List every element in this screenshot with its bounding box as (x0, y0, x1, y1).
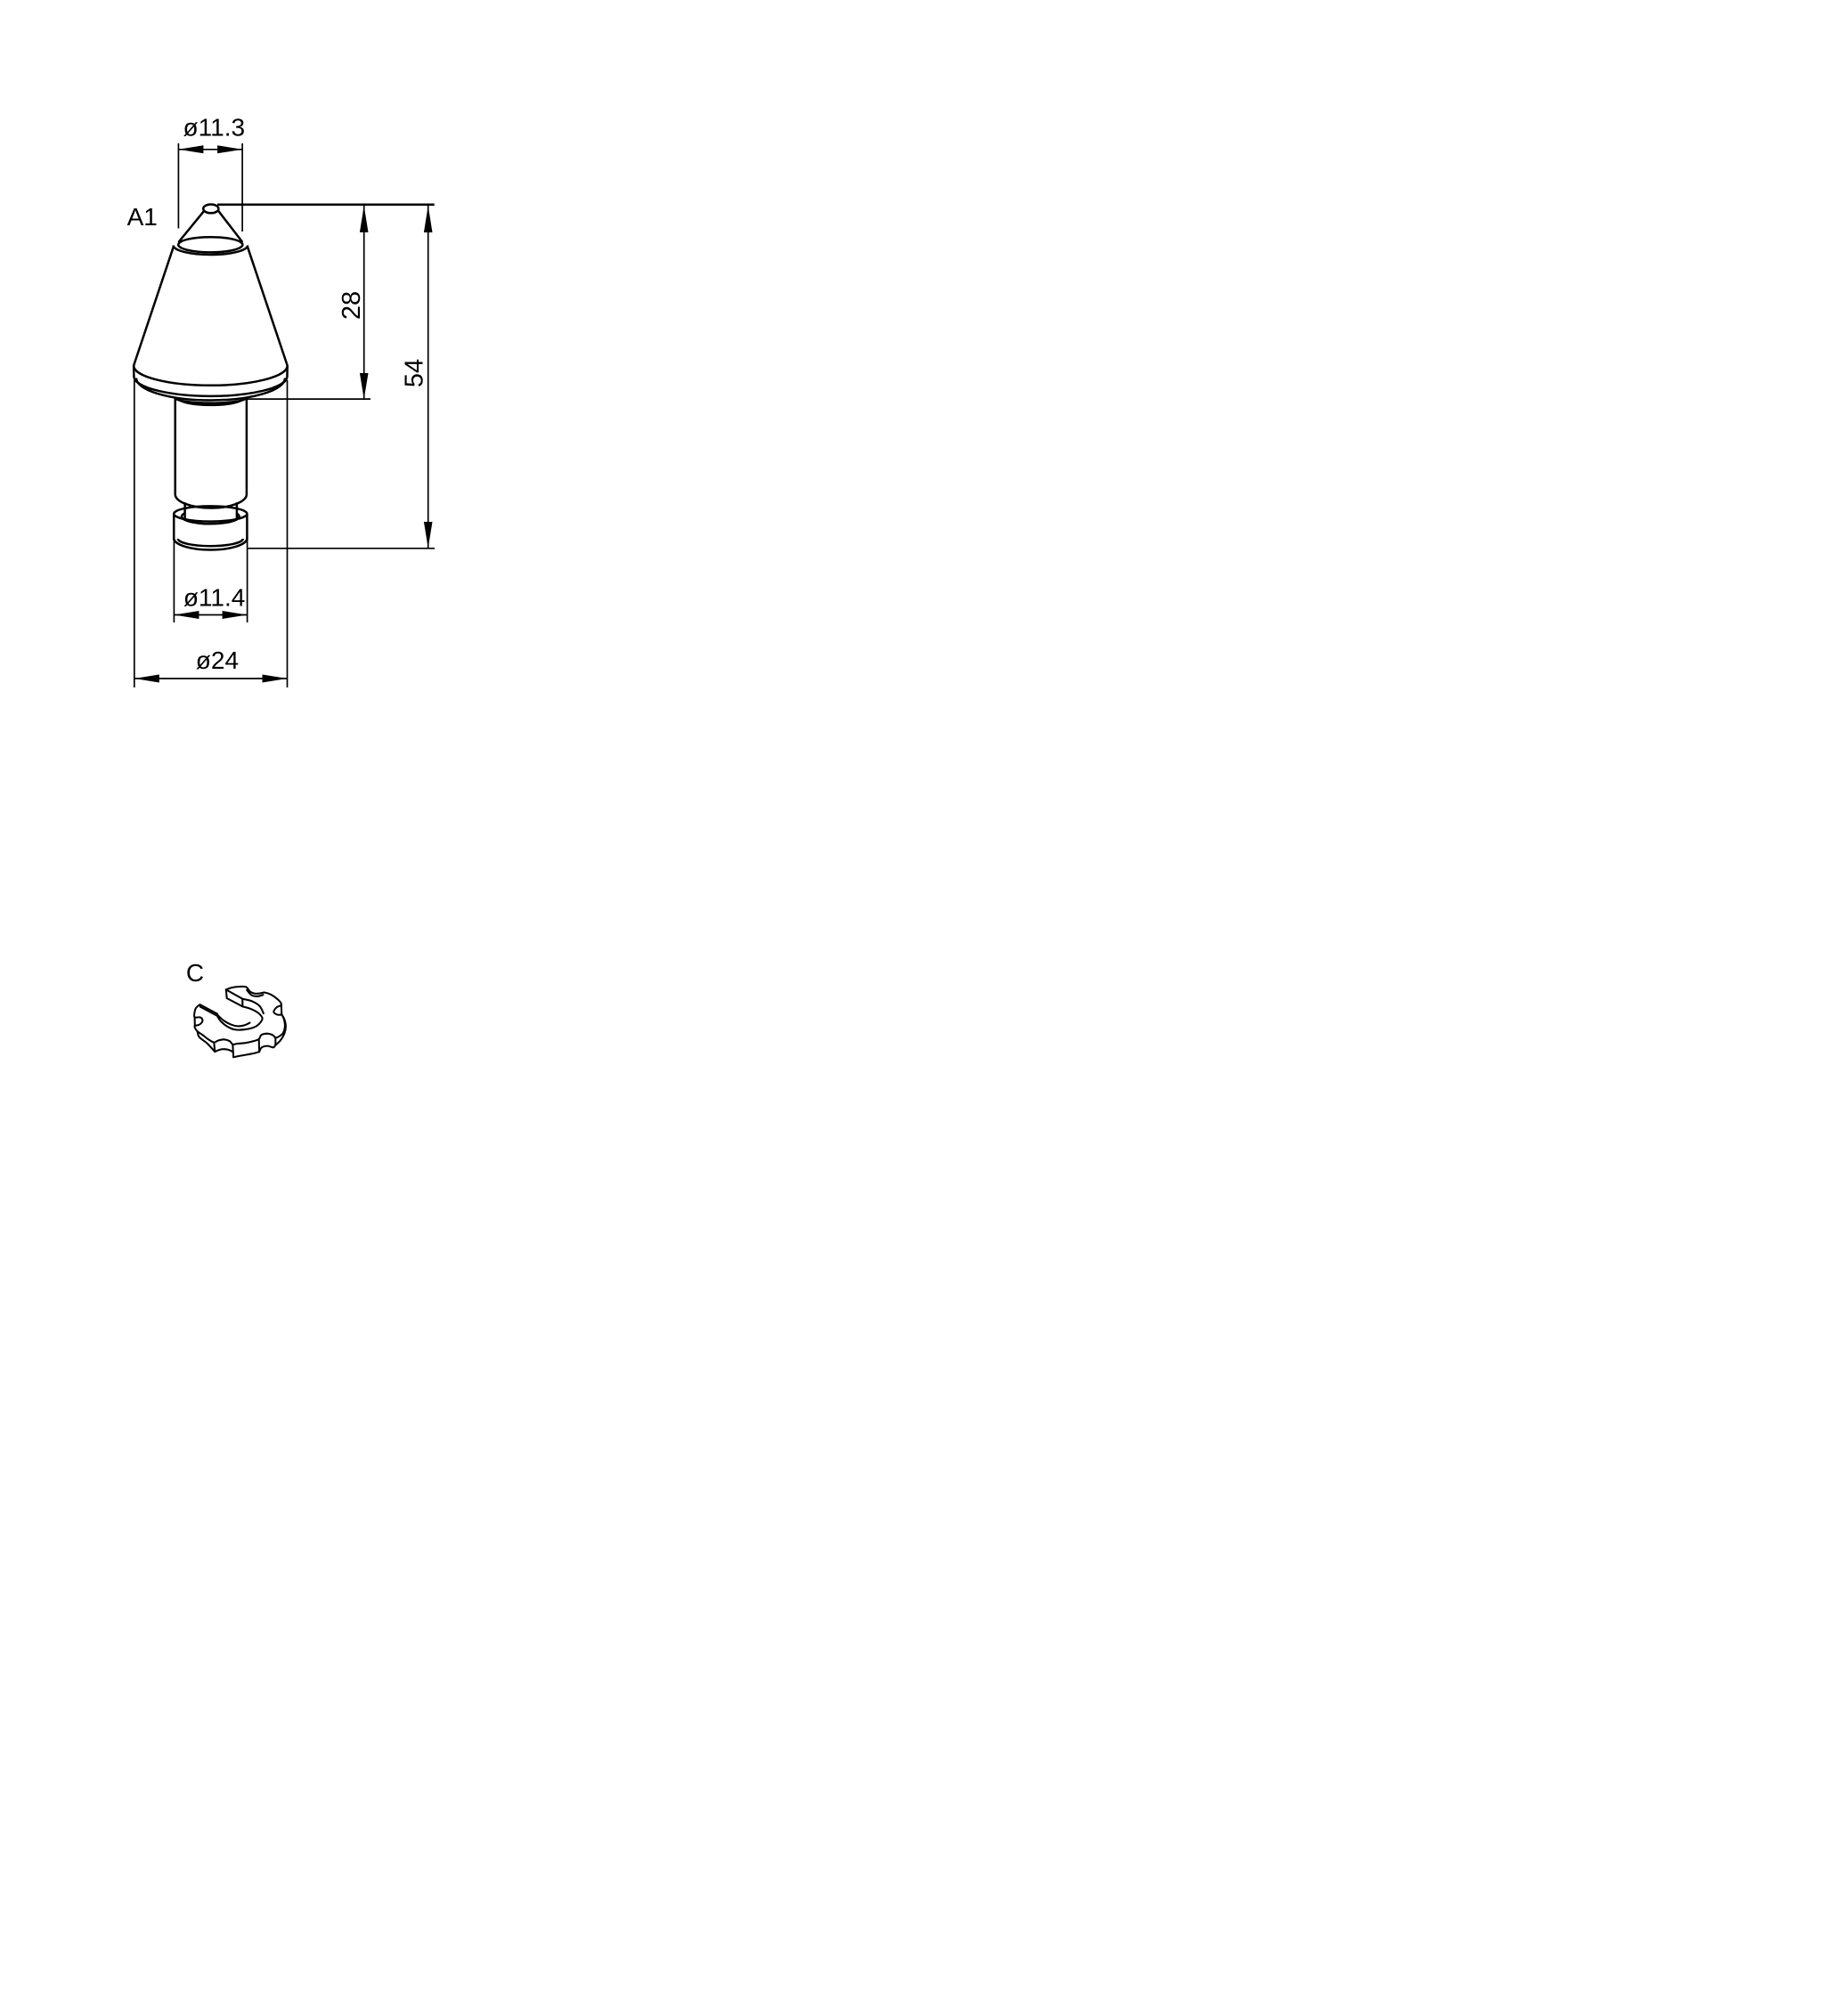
svg-text:28: 28 (338, 291, 366, 320)
svg-text:54: 54 (401, 359, 429, 387)
svg-text:A1: A1 (127, 203, 158, 231)
svg-text:ø24: ø24 (196, 646, 239, 674)
svg-text:ø11.4: ø11.4 (183, 583, 246, 611)
svg-text:ø11.3: ø11.3 (183, 114, 246, 142)
svg-text:C: C (186, 959, 204, 987)
